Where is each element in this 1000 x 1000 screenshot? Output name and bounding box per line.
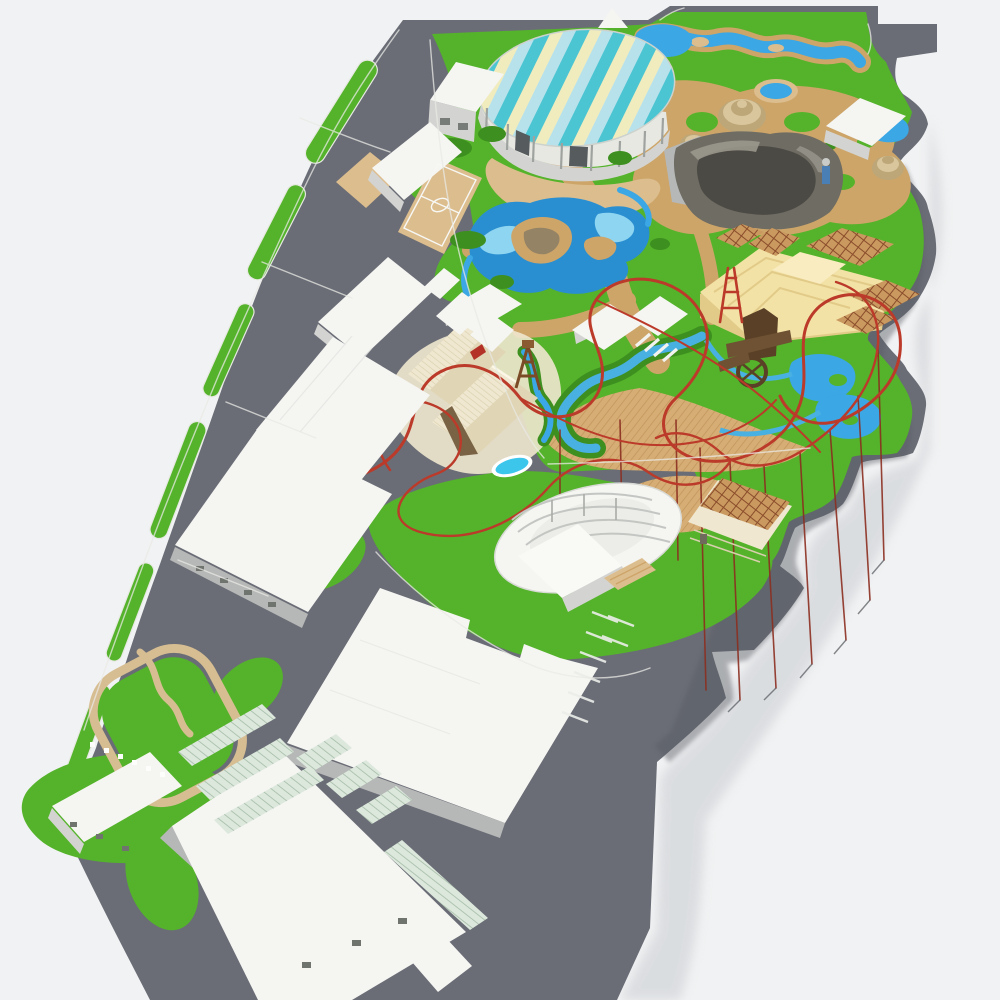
site-plan-render — [0, 0, 1000, 1000]
pond-islet — [829, 374, 847, 386]
derrick-cab — [522, 340, 534, 348]
round-pool — [760, 83, 792, 99]
screenshot-root — [0, 0, 1000, 1000]
statue-figure — [822, 166, 830, 184]
stupa-large — [718, 99, 766, 133]
river-islet — [691, 37, 709, 47]
statue-head — [822, 158, 830, 166]
river-islet — [768, 44, 784, 52]
annex-door — [458, 123, 468, 130]
annex-door — [440, 118, 450, 125]
stupa-south — [872, 156, 904, 180]
trellis-door — [700, 534, 707, 544]
